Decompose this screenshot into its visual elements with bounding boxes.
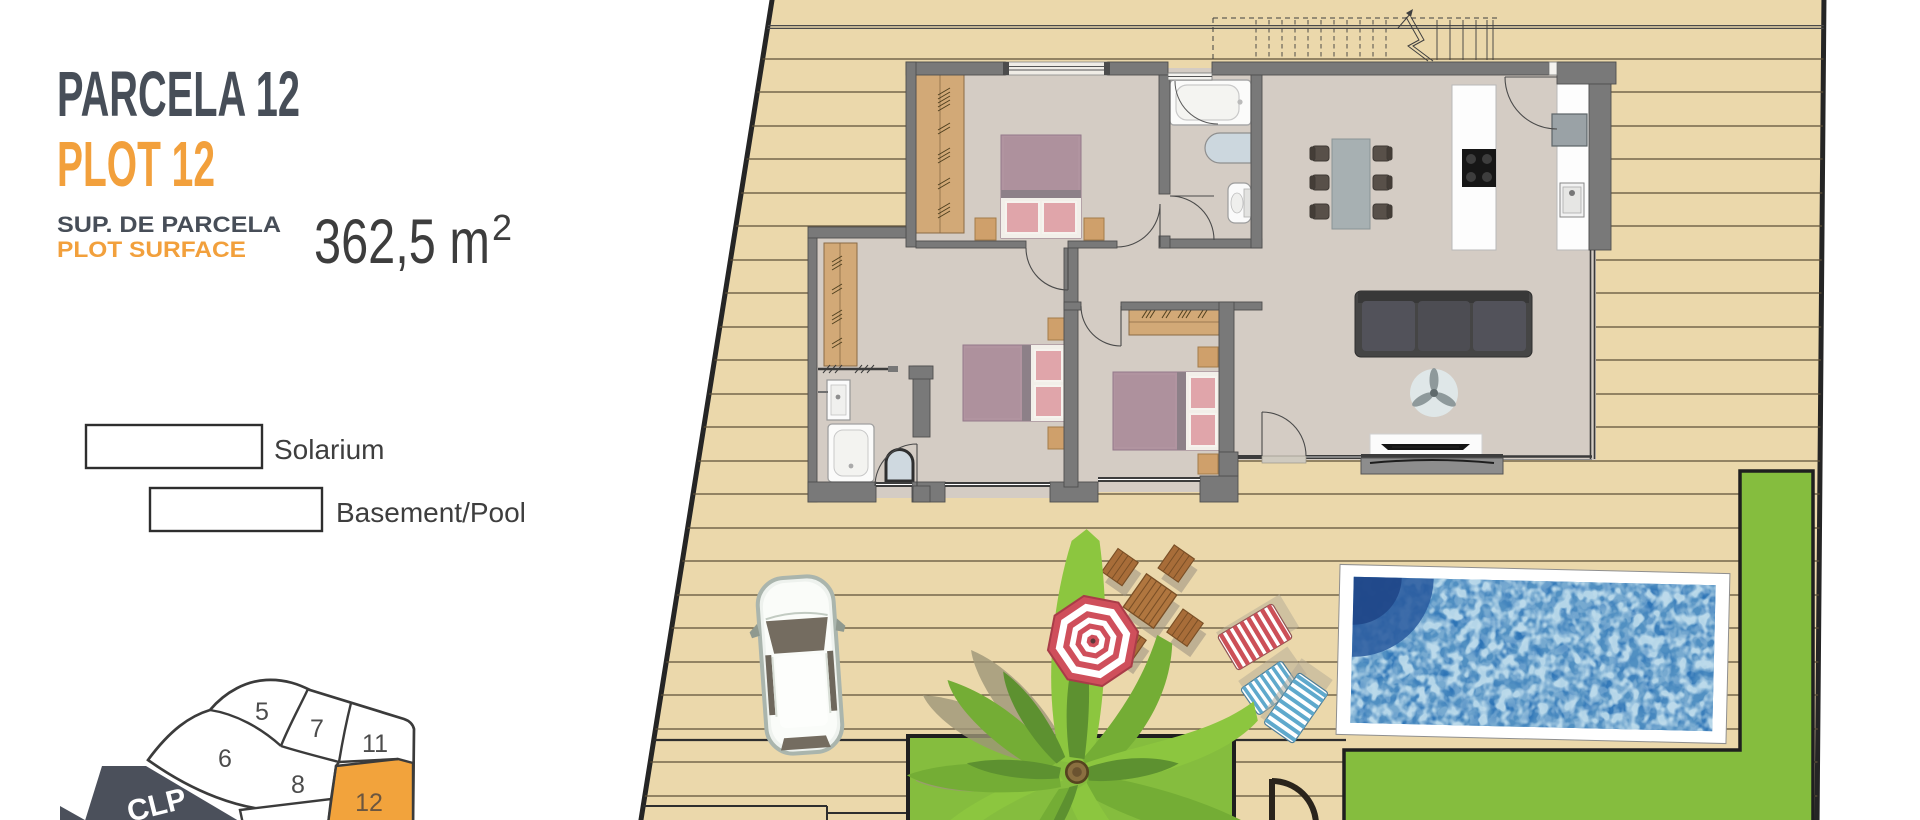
- svg-text:7: 7: [310, 715, 324, 743]
- svg-text:11: 11: [362, 730, 388, 758]
- svg-text:SUP. DE PARCELA: SUP. DE PARCELA: [57, 212, 281, 237]
- svg-text:6: 6: [218, 745, 232, 773]
- svg-text:Solarium: Solarium: [274, 434, 384, 465]
- svg-text:2: 2: [492, 207, 512, 248]
- svg-text:PLOT SURFACE: PLOT SURFACE: [57, 237, 246, 262]
- svg-text:8: 8: [291, 771, 305, 799]
- svg-text:PLOT 12: PLOT 12: [57, 128, 215, 200]
- svg-text:362,5 m: 362,5 m: [314, 207, 490, 277]
- svg-text:PARCELA 12: PARCELA 12: [57, 58, 300, 130]
- svg-text:12: 12: [355, 789, 383, 817]
- svg-text:5: 5: [255, 698, 269, 726]
- svg-text:Basement/Pool: Basement/Pool: [336, 497, 526, 528]
